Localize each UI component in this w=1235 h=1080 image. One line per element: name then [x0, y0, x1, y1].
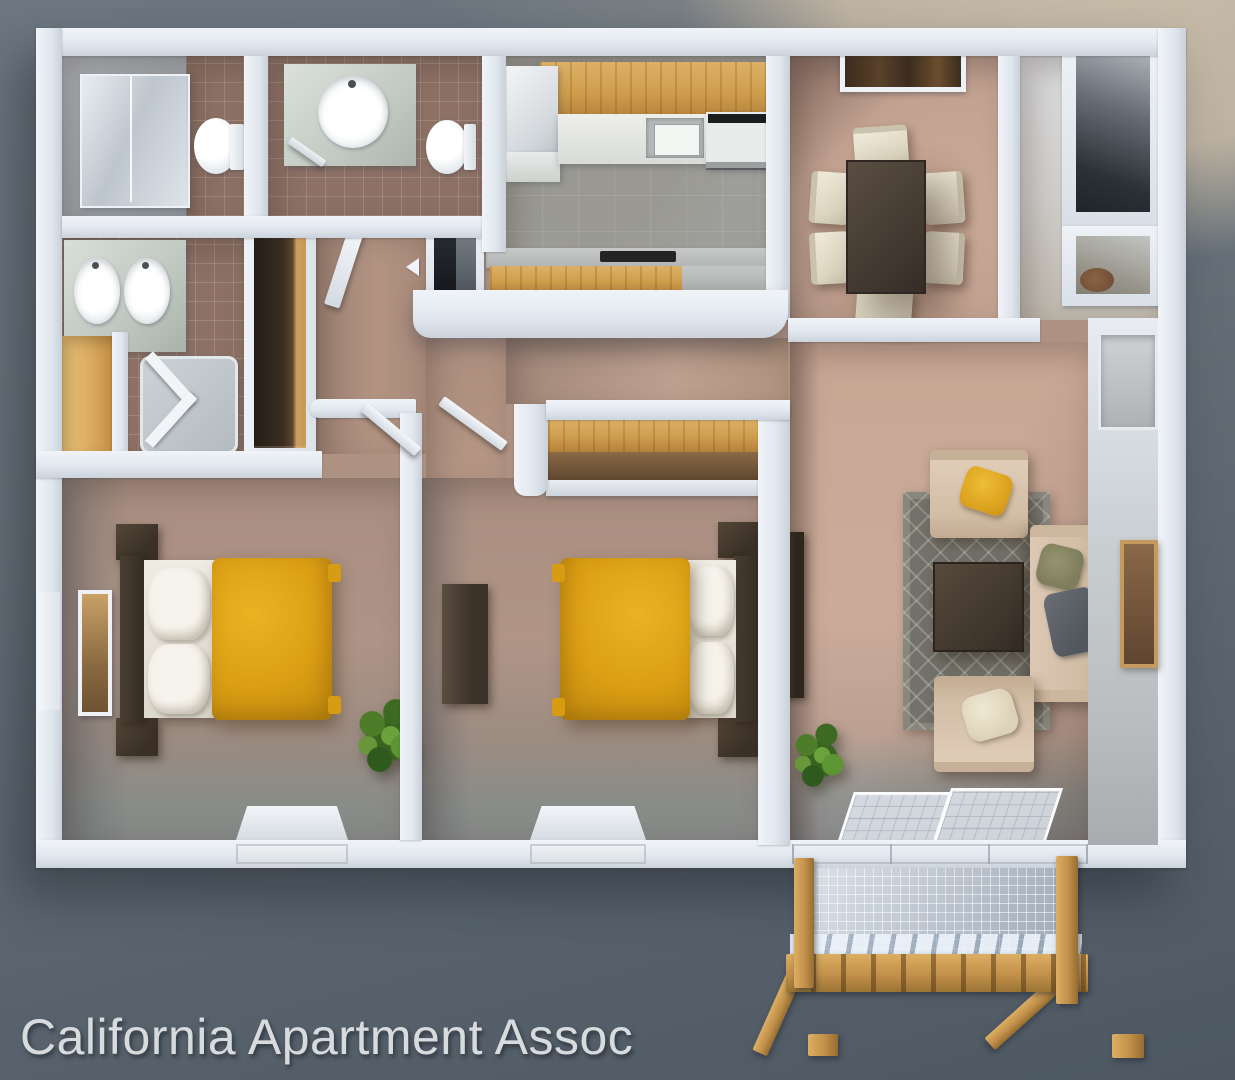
bedroom-1-bedpost-bottom — [328, 696, 341, 714]
bedroom-1-left-window — [38, 592, 60, 710]
balcony-post-left — [794, 858, 814, 988]
living-wall-art — [1120, 540, 1158, 668]
entry-closet-small-item — [1080, 268, 1114, 292]
kitchen-sink-basin — [654, 124, 700, 156]
master-faucet-left — [92, 262, 99, 269]
guest-toilet-bowl — [426, 120, 468, 174]
bedroom-1-bedpost-top — [328, 564, 341, 582]
bedroom-1-comforter — [212, 558, 332, 720]
bedroom-2-pillow-bottom — [688, 642, 734, 714]
bedroom-1-pillow-bottom — [148, 644, 210, 714]
bedroom-1-nightstand-top — [116, 524, 158, 560]
entry-closet-large-interior — [1076, 56, 1150, 212]
master-faucet-right — [142, 262, 149, 269]
scene: California Apartment Assoc — [0, 0, 1235, 1080]
bedroom-2-closet-track — [546, 480, 788, 496]
hall-floor-lower — [506, 338, 788, 404]
kitchen-side-counter — [506, 152, 560, 182]
refrigerator — [506, 66, 558, 152]
bedroom-1-pillow-top — [148, 568, 210, 640]
wall-bedroom2-living — [758, 404, 790, 845]
stove-control-strip — [708, 114, 766, 123]
glass-shower-panel-line — [130, 76, 132, 202]
wall-dining-entry — [998, 56, 1020, 320]
bedroom-2-headboard — [734, 556, 760, 722]
outer-wall-right — [1158, 28, 1186, 868]
pantry-interior-dark — [434, 228, 456, 296]
bedroom-2-nightstand-bottom — [718, 718, 760, 757]
bedroom-2-closet-stub-wall — [514, 404, 548, 496]
wall-below-bathrooms — [62, 216, 482, 238]
coffee-table — [933, 562, 1024, 652]
outer-wall-top — [36, 28, 1186, 56]
wall-bedroom1-bedroom2 — [400, 413, 422, 840]
wall-dining-living — [788, 318, 1040, 342]
bedroom-1-top-wall — [36, 451, 322, 478]
wall-bath1-bath2 — [244, 56, 268, 216]
bedroom-2-closet-shelf — [548, 420, 786, 452]
bedroom-1-window-light — [236, 806, 348, 840]
wardrobe-interior — [254, 228, 306, 448]
wall-bath2-kitchen — [482, 56, 506, 252]
peninsula-cooktop — [600, 251, 676, 262]
toilet-tank — [230, 124, 244, 170]
balcony-rail — [786, 954, 1088, 992]
dining-chair-right-1 — [922, 171, 966, 226]
wall-vent-window — [1098, 332, 1158, 430]
dining-window — [840, 50, 966, 92]
guest-toilet-tank — [464, 124, 476, 170]
living-room-plant — [788, 712, 850, 806]
dining-chair-left-2 — [809, 231, 852, 285]
linen-closet-divider-wall — [112, 332, 128, 456]
stove-front-shadow — [706, 162, 768, 170]
bedroom-1-headboard — [120, 556, 146, 722]
outer-wall-left — [36, 28, 62, 868]
bedroom-2-bedpost-bottom — [552, 698, 565, 716]
bedroom-1-wall-mirror — [78, 590, 112, 716]
bedroom-2-closet-back-wall — [546, 400, 790, 420]
balcony-foot-left — [808, 1034, 838, 1056]
bedroom-2-closet-shadow — [548, 452, 786, 480]
linen-closet-floor — [62, 336, 114, 454]
pantry-interior-light — [456, 228, 476, 296]
balcony-post-right — [1056, 856, 1078, 1004]
bedroom-1-window — [236, 844, 348, 864]
watermark-text: California Apartment Assoc — [20, 1008, 633, 1066]
kitchen-half-wall — [413, 290, 788, 338]
glass-shower — [80, 74, 190, 208]
wall-kitchen-dining — [766, 56, 790, 320]
dining-chair-right-2 — [923, 231, 966, 285]
bedroom-2-nightstand-top — [718, 522, 760, 558]
sliding-door-light-2 — [933, 788, 1063, 844]
guest-faucet — [348, 80, 356, 88]
hall-door-marker-icon — [406, 258, 419, 276]
balcony-foot-right — [1112, 1034, 1144, 1058]
bedroom-2-comforter — [560, 558, 690, 720]
bedroom-2-window — [530, 844, 646, 864]
bedroom-2-dresser — [442, 584, 488, 704]
bedroom-1-nightstand-bottom — [116, 718, 158, 756]
bedroom-2-pillow-top — [688, 566, 734, 636]
sliding-glass-door — [792, 844, 1088, 864]
bedroom-2-bedpost-top — [552, 564, 565, 582]
dining-table — [846, 160, 926, 294]
bedroom-2-window-light — [530, 806, 646, 840]
